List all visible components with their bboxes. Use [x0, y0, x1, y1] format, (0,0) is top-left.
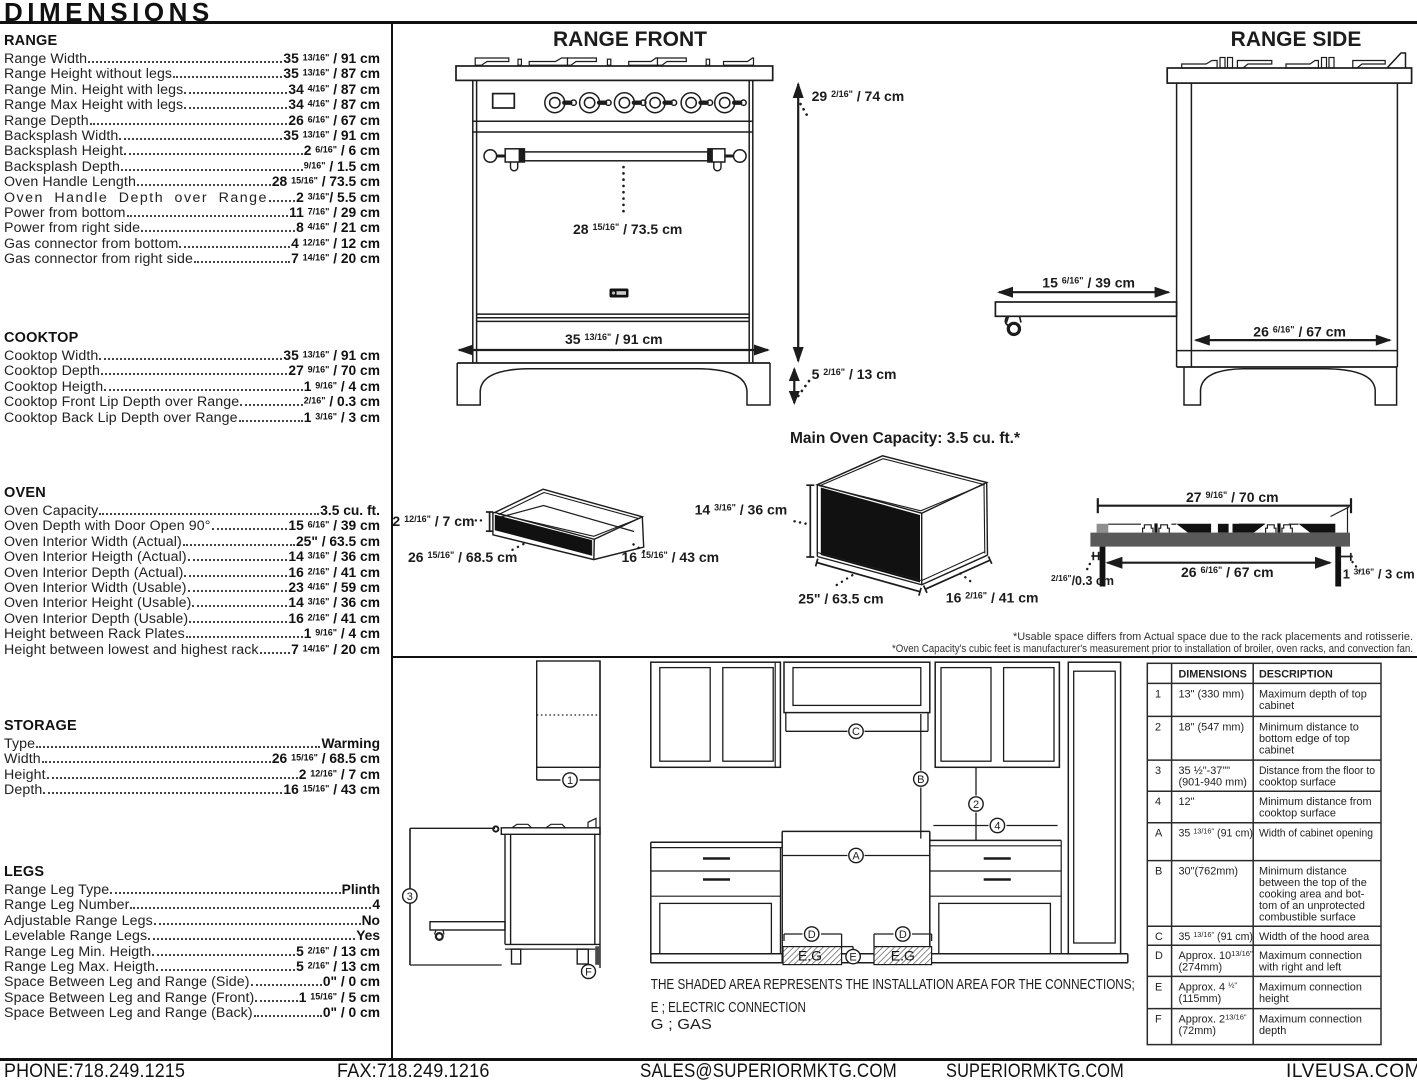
svg-text:height: height — [1259, 993, 1289, 1005]
svg-text:with right and left: with right and left — [1258, 962, 1341, 974]
svg-text:1: 1 — [1155, 689, 1161, 701]
svg-text:C: C — [852, 726, 860, 738]
svg-text:B: B — [917, 774, 924, 786]
svg-text:RANGE FRONT: RANGE FRONT — [553, 28, 707, 51]
svg-text:Minimum distance: Minimum distance — [1259, 866, 1347, 878]
svg-text:(901-940 mm): (901-940 mm) — [1179, 777, 1247, 789]
svg-text:cooktop surface: cooktop surface — [1259, 777, 1336, 789]
svg-text:18" (547 mm): 18" (547 mm) — [1179, 722, 1245, 734]
svg-text:Main Oven Capacity: 3.5 cu. ft: Main Oven Capacity: 3.5 cu. ft.* — [790, 430, 1021, 447]
svg-text:25" / 63.5 cm: 25" / 63.5 cm — [798, 591, 883, 607]
svg-text:THE SHADED AREA REPRESENTS THE: THE SHADED AREA REPRESENTS THE INSTALLAT… — [651, 977, 1135, 993]
svg-text:13" (330 mm): 13" (330 mm) — [1179, 689, 1245, 701]
svg-text:4: 4 — [1155, 796, 1161, 808]
svg-text:26 6/16" / 67 cm: 26 6/16" / 67 cm — [1181, 564, 1274, 580]
svg-text:35 ½"-37"": 35 ½"-37"" — [1179, 765, 1231, 777]
svg-text:(72mm): (72mm) — [1179, 1025, 1217, 1037]
svg-text:between the top of the: between the top of the — [1259, 877, 1367, 889]
svg-text:E.G: E.G — [891, 948, 915, 964]
svg-text:*Oven Capacity's cubic feet is: *Oven Capacity's cubic feet is manufactu… — [892, 643, 1413, 655]
svg-text:Approx. 4 ½": Approx. 4 ½" — [1179, 981, 1238, 994]
svg-text:(274mm): (274mm) — [1179, 962, 1223, 974]
svg-text:DIMENSIONS: DIMENSIONS — [1179, 669, 1247, 681]
svg-text:Maximum connection: Maximum connection — [1259, 982, 1362, 994]
svg-text:A: A — [1155, 828, 1163, 840]
svg-text:27 9/16" / 70 cm: 27 9/16" / 70 cm — [1186, 489, 1279, 505]
svg-text:D: D — [899, 929, 907, 941]
svg-text:bottom edge of top: bottom edge of top — [1259, 733, 1350, 745]
svg-text:D: D — [1155, 950, 1163, 962]
svg-text:C: C — [1155, 931, 1163, 943]
svg-text:35 13/16" / 91 cm: 35 13/16" / 91 cm — [565, 331, 663, 347]
svg-text:F: F — [1155, 1014, 1162, 1026]
svg-text:E: E — [849, 952, 856, 964]
svg-text:(115mm): (115mm) — [1179, 993, 1222, 1005]
svg-text:RANGE SIDE: RANGE SIDE — [1231, 28, 1362, 51]
svg-text:E: E — [1155, 982, 1162, 994]
svg-text:16 15/16" / 43 cm: 16 15/16" / 43 cm — [622, 549, 720, 565]
svg-text:cooking area and bot-: cooking area and bot- — [1259, 889, 1365, 901]
svg-text:cabinet: cabinet — [1259, 700, 1294, 712]
svg-text:26 15/16" / 68.5 cm: 26 15/16" / 68.5 cm — [408, 549, 517, 565]
svg-text:2: 2 — [1155, 722, 1161, 734]
svg-text:Maximum connection: Maximum connection — [1259, 1014, 1362, 1026]
svg-text:D: D — [808, 929, 816, 941]
svg-text:3: 3 — [1155, 765, 1161, 777]
svg-text:G ; GAS: G ; GAS — [651, 1017, 712, 1033]
svg-text:35 13/16" (91 cm): 35 13/16" (91 cm) — [1179, 827, 1253, 840]
svg-text:12": 12" — [1179, 796, 1195, 808]
svg-text:1: 1 — [567, 775, 573, 787]
svg-text:Approx. 213/16": Approx. 213/16" — [1179, 1013, 1247, 1026]
svg-text:E.G: E.G — [798, 948, 822, 964]
svg-text:3: 3 — [407, 891, 413, 903]
svg-text:30"(762mm): 30"(762mm) — [1179, 866, 1239, 878]
svg-text:E ; ELECTRIC CONNECTION: E ; ELECTRIC CONNECTION — [651, 1000, 806, 1016]
svg-text:Minimum distance to: Minimum distance to — [1259, 722, 1359, 734]
svg-text:Minimum distance from: Minimum distance from — [1259, 796, 1372, 808]
svg-text:16 2/16" / 41 cm: 16 2/16" / 41 cm — [946, 590, 1039, 606]
svg-text:*Usable space differs from Act: *Usable space differs from Actual space … — [1013, 631, 1413, 643]
svg-text:Distance from the floor to: Distance from the floor to — [1259, 765, 1375, 777]
svg-text:4: 4 — [994, 820, 1000, 832]
svg-text:Maximum connection: Maximum connection — [1259, 950, 1362, 962]
svg-text:Width of the hood area: Width of the hood area — [1259, 931, 1370, 943]
svg-text:combustible surface: combustible surface — [1259, 912, 1356, 924]
svg-text:26 6/16" / 67 cm: 26 6/16" / 67 cm — [1253, 324, 1346, 340]
svg-text:5 2/16" / 13 cm: 5 2/16" / 13 cm — [812, 366, 897, 382]
svg-text:Maximum depth of top: Maximum depth of top — [1259, 689, 1367, 701]
svg-text:Width of cabinet opening: Width of cabinet opening — [1259, 828, 1373, 840]
svg-text:28 15/16" / 73.5 cm: 28 15/16" / 73.5 cm — [573, 221, 682, 237]
svg-text:15 6/16" / 39 cm: 15 6/16" / 39 cm — [1042, 275, 1135, 291]
svg-text:35 13/16" (91 cm): 35 13/16" (91 cm) — [1179, 930, 1253, 943]
svg-text:14 3/16" / 36 cm: 14 3/16" / 36 cm — [695, 502, 788, 518]
svg-text:cabinet: cabinet — [1259, 745, 1294, 757]
svg-text:1 3/16" / 3 cm: 1 3/16" / 3 cm — [1343, 567, 1415, 582]
svg-text:depth: depth — [1259, 1025, 1286, 1037]
svg-text:2: 2 — [973, 799, 979, 811]
svg-text:cooktop surface: cooktop surface — [1259, 808, 1336, 820]
svg-text:2 12/16" / 7 cm: 2 12/16" / 7 cm — [392, 513, 474, 529]
svg-text:tom of an unprotected: tom of an unprotected — [1259, 900, 1365, 912]
svg-text:Approx. 1013/16": Approx. 1013/16" — [1179, 949, 1253, 962]
svg-text:A: A — [852, 850, 860, 862]
svg-text:F: F — [585, 966, 592, 978]
svg-text:2/16"/0.3 cm: 2/16"/0.3 cm — [1051, 573, 1114, 588]
svg-text:DESCRIPTION: DESCRIPTION — [1259, 669, 1333, 681]
svg-text:B: B — [1155, 866, 1162, 878]
svg-text:29 2/16" / 74 cm: 29 2/16" / 74 cm — [812, 88, 905, 104]
